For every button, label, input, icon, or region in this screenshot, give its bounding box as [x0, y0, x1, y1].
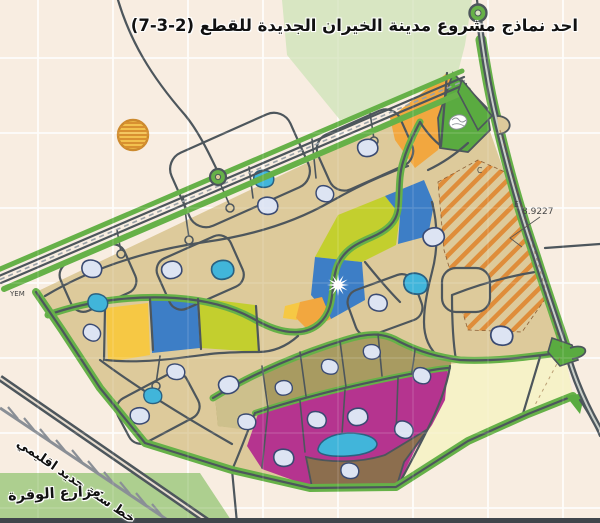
hatched-circle-icon	[118, 120, 148, 150]
zone-letter-c: C	[477, 166, 482, 175]
map-bottom-edge	[0, 518, 600, 523]
corner-mark: YEM	[9, 290, 25, 298]
map-canvas: 8.9227 E C YEM	[0, 0, 600, 523]
map-title: احد نماذج مشروع مدينة الخيران الجديدة لل…	[131, 16, 578, 35]
master-plan-map: 8.9227 E C YEM احد نماذج مشروع مدينة الخ…	[0, 0, 600, 523]
